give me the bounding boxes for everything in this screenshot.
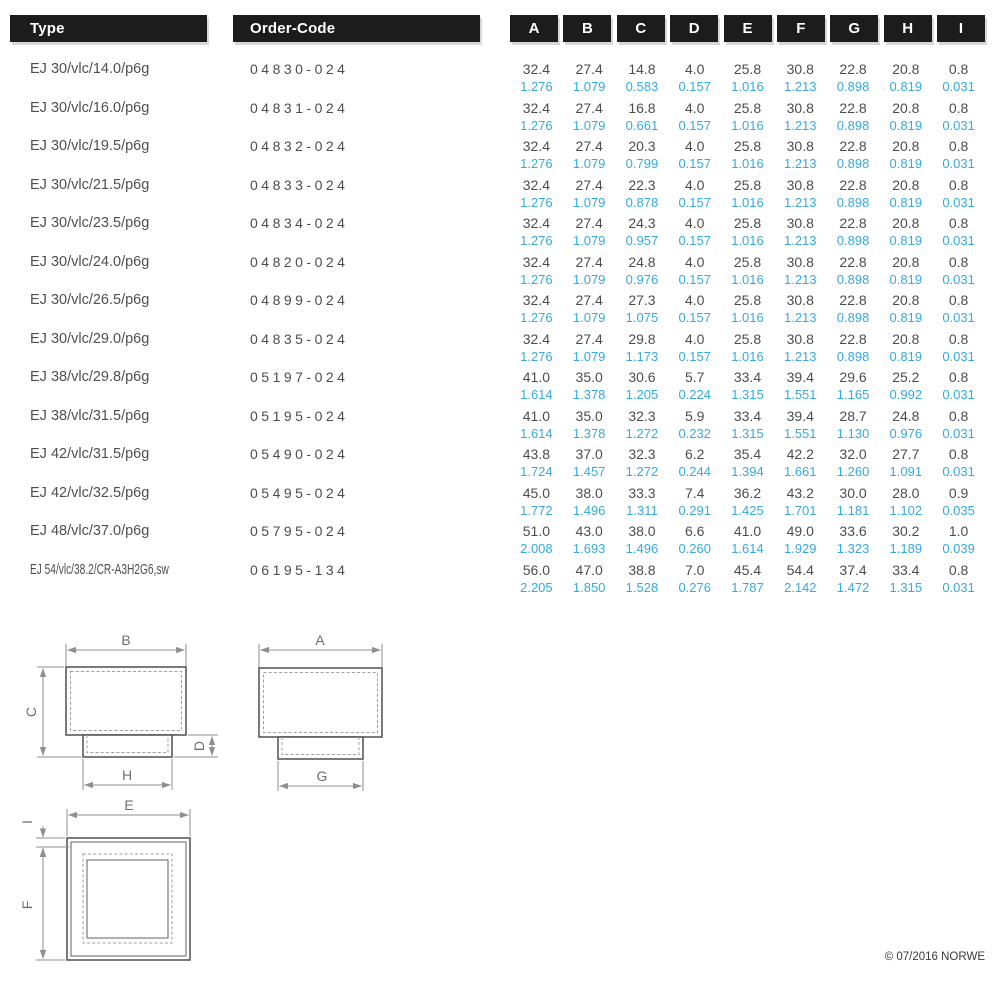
dimension-value-cell: 27.41.079 (563, 60, 616, 96)
value-inch: 1.213 (774, 156, 827, 171)
value-mm: 22.8 (827, 60, 880, 79)
value-inch: 1.315 (721, 426, 774, 441)
value-inch: 0.157 (668, 79, 721, 94)
dimension-label-b: B (121, 632, 130, 648)
value-inch: 0.031 (932, 156, 985, 171)
dimension-values: 45.01.77238.01.49633.31.3117.40.29136.21… (510, 484, 985, 520)
dimension-value-cell: 32.41.276 (510, 214, 563, 250)
dimension-values: 41.01.61435.01.37830.61.2055.70.22433.41… (510, 368, 985, 404)
value-inch: 0.898 (827, 79, 880, 94)
bottom-view-drawing: E I F (22, 795, 217, 975)
dimension-value-cell: 22.30.878 (616, 176, 669, 212)
type-cell: EJ 30/vlc/21.5/p6g (0, 176, 250, 212)
dimension-value-cell: 30.01.181 (827, 484, 880, 520)
dimension-value-cell: 35.41.394 (721, 445, 774, 481)
value-mm: 0.8 (932, 561, 985, 580)
value-inch: 1.213 (774, 118, 827, 133)
value-inch: 1.102 (879, 503, 932, 518)
value-inch: 0.031 (932, 387, 985, 402)
dimension-value-cell: 6.60.260 (668, 522, 721, 558)
value-mm: 30.8 (774, 330, 827, 349)
dimension-value-cell: 30.81.213 (774, 60, 827, 96)
dimension-value-cell: 27.41.079 (563, 176, 616, 212)
value-mm: 22.3 (616, 176, 669, 195)
value-mm: 25.2 (879, 368, 932, 387)
dimension-value-cell: 0.80.031 (932, 291, 985, 327)
value-mm: 6.2 (668, 445, 721, 464)
value-inch: 0.031 (932, 426, 985, 441)
value-mm: 32.4 (510, 99, 563, 118)
dimension-value-cell: 4.00.157 (668, 253, 721, 289)
value-mm: 30.6 (616, 368, 669, 387)
dimension-label-h: H (122, 767, 132, 783)
value-mm: 16.8 (616, 99, 669, 118)
dimension-value-cell: 51.02.008 (510, 522, 563, 558)
value-inch: 0.157 (668, 118, 721, 133)
value-inch: 0.031 (932, 79, 985, 94)
dimension-value-cell: 25.81.016 (721, 99, 774, 135)
value-mm: 4.0 (668, 214, 721, 233)
value-mm: 5.9 (668, 407, 721, 426)
table-row: EJ 42/vlc/31.5/p6g 05490-024 43.81.72437… (0, 442, 1000, 481)
table-row: EJ 30/vlc/21.5/p6g 04833-024 32.41.27627… (0, 173, 1000, 212)
value-mm: 4.0 (668, 253, 721, 272)
dimension-value-cell: 43.21.701 (774, 484, 827, 520)
dimension-value-cell: 56.02.205 (510, 561, 563, 597)
value-inch: 0.976 (879, 426, 932, 441)
value-mm: 38.0 (616, 522, 669, 541)
value-inch: 1.276 (510, 79, 563, 94)
value-mm: 0.8 (932, 176, 985, 195)
value-mm: 42.2 (774, 445, 827, 464)
dimension-value-cell: 32.41.276 (510, 330, 563, 366)
dimension-value-cell: 25.81.016 (721, 253, 774, 289)
dimension-value-cell: 30.81.213 (774, 291, 827, 327)
dimension-value-cell: 25.81.016 (721, 291, 774, 327)
value-mm: 41.0 (721, 522, 774, 541)
value-mm: 22.8 (827, 330, 880, 349)
dimension-value-cell: 25.20.992 (879, 368, 932, 404)
value-inch: 1.016 (721, 118, 774, 133)
type-header-label: Type (30, 20, 65, 37)
value-mm: 22.8 (827, 137, 880, 156)
table-row: EJ 30/vlc/14.0/p6g 04830-024 32.41.27627… (0, 57, 1000, 96)
value-inch: 1.173 (616, 349, 669, 364)
value-inch: 0.898 (827, 156, 880, 171)
type-cell: EJ 42/vlc/31.5/p6g (0, 445, 250, 481)
value-inch: 0.819 (879, 272, 932, 287)
value-inch: 1.457 (563, 464, 616, 479)
value-mm: 28.0 (879, 484, 932, 503)
value-mm: 49.0 (774, 522, 827, 541)
value-inch: 0.898 (827, 233, 880, 248)
dimension-value-cell: 0.80.031 (932, 445, 985, 481)
value-inch: 1.189 (879, 541, 932, 556)
value-mm: 22.8 (827, 176, 880, 195)
dimension-value-cell: 39.41.551 (774, 368, 827, 404)
value-inch: 1.213 (774, 79, 827, 94)
dimension-value-cell: 32.41.276 (510, 291, 563, 327)
value-inch: 0.976 (616, 272, 669, 287)
dimension-value-cell: 22.80.898 (827, 291, 880, 327)
dimension-value-cell: 20.80.819 (879, 253, 932, 289)
value-inch: 1.378 (563, 426, 616, 441)
dimension-value-cell: 43.81.724 (510, 445, 563, 481)
value-mm: 27.7 (879, 445, 932, 464)
value-inch: 0.157 (668, 233, 721, 248)
dimension-value-cell: 27.41.079 (563, 253, 616, 289)
dimension-value-cell: 4.00.157 (668, 330, 721, 366)
table-row: EJ 38/vlc/29.8/p6g 05197-024 41.01.61435… (0, 365, 1000, 404)
dimension-value-cell: 30.81.213 (774, 253, 827, 289)
value-mm: 38.8 (616, 561, 669, 580)
value-mm: 37.4 (827, 561, 880, 580)
value-inch: 1.079 (563, 156, 616, 171)
value-inch: 1.551 (774, 426, 827, 441)
value-inch: 0.898 (827, 349, 880, 364)
dimension-value-cell: 4.00.157 (668, 99, 721, 135)
dimension-value-cell: 32.41.276 (510, 253, 563, 289)
dimension-value-cell: 32.01.260 (827, 445, 880, 481)
value-mm: 32.4 (510, 330, 563, 349)
value-inch: 1.528 (616, 580, 669, 595)
dimension-value-cell: 27.31.075 (616, 291, 669, 327)
value-inch: 1.772 (510, 503, 563, 518)
value-inch: 1.315 (721, 387, 774, 402)
value-inch: 0.157 (668, 195, 721, 210)
dimension-value-cell: 1.00.039 (932, 522, 985, 558)
dimension-values: 51.02.00843.01.69338.01.4966.60.26041.01… (510, 522, 985, 558)
value-inch: 1.079 (563, 310, 616, 325)
table-row: EJ 30/vlc/29.0/p6g 04835-024 32.41.27627… (0, 327, 1000, 366)
value-inch: 0.957 (616, 233, 669, 248)
type-cell: EJ 54/vlc/38.2/CR-A3H2G6,sw (0, 561, 250, 597)
dimension-value-cell: 32.41.276 (510, 99, 563, 135)
dimension-label-i: I (22, 820, 35, 824)
value-mm: 4.0 (668, 330, 721, 349)
dimension-value-cell: 39.41.551 (774, 407, 827, 443)
value-mm: 25.8 (721, 137, 774, 156)
dimension-value-cell: 16.80.661 (616, 99, 669, 135)
value-mm: 45.0 (510, 484, 563, 503)
value-inch: 0.819 (879, 310, 932, 325)
value-inch: 1.079 (563, 349, 616, 364)
dimension-value-cell: 0.80.031 (932, 137, 985, 173)
value-inch: 1.323 (827, 541, 880, 556)
value-inch: 1.276 (510, 118, 563, 133)
value-inch: 1.276 (510, 156, 563, 171)
value-mm: 43.8 (510, 445, 563, 464)
dimension-value-cell: 24.30.957 (616, 214, 669, 250)
value-inch: 1.693 (563, 541, 616, 556)
table-row: EJ 30/vlc/23.5/p6g 04834-024 32.41.27627… (0, 211, 1000, 250)
value-mm: 6.6 (668, 522, 721, 541)
dimension-value-cell: 4.00.157 (668, 214, 721, 250)
value-inch: 0.031 (932, 195, 985, 210)
value-inch: 0.799 (616, 156, 669, 171)
dimension-value-cell: 20.30.799 (616, 137, 669, 173)
value-mm: 0.8 (932, 137, 985, 156)
table-row: EJ 48/vlc/37.0/p6g 05795-024 51.02.00843… (0, 519, 1000, 558)
stem-outline (278, 737, 363, 759)
value-inch: 1.181 (827, 503, 880, 518)
dimension-value-cell: 45.41.787 (721, 561, 774, 597)
value-mm: 0.8 (932, 99, 985, 118)
dimension-value-cell: 0.80.031 (932, 368, 985, 404)
value-inch: 1.425 (721, 503, 774, 518)
value-inch: 0.157 (668, 156, 721, 171)
value-inch: 1.079 (563, 195, 616, 210)
value-mm: 7.0 (668, 561, 721, 580)
value-mm: 28.7 (827, 407, 880, 426)
type-label: EJ 42/vlc/32.5/p6g (30, 484, 149, 503)
column-header-f: F (777, 15, 825, 42)
dimension-value-cell: 30.81.213 (774, 330, 827, 366)
value-inch: 0.819 (879, 349, 932, 364)
value-inch: 1.661 (774, 464, 827, 479)
value-mm: 0.8 (932, 291, 985, 310)
dimension-value-cell: 27.41.079 (563, 137, 616, 173)
value-mm: 27.4 (563, 60, 616, 79)
dimension-value-cell: 30.81.213 (774, 99, 827, 135)
dimension-header-row: ABCDEFGHI (510, 15, 985, 42)
dimension-value-cell: 20.80.819 (879, 176, 932, 212)
dimension-value-cell: 0.80.031 (932, 60, 985, 96)
value-mm: 27.4 (563, 137, 616, 156)
stem-outline (83, 735, 172, 757)
dimension-value-cell: 22.80.898 (827, 137, 880, 173)
dimension-values: 32.41.27627.41.07924.30.9574.00.15725.81… (510, 214, 985, 250)
value-mm: 0.8 (932, 330, 985, 349)
dimension-value-cell: 22.80.898 (827, 253, 880, 289)
dimension-value-cell: 41.01.614 (510, 407, 563, 443)
value-mm: 56.0 (510, 561, 563, 580)
value-mm: 4.0 (668, 291, 721, 310)
value-mm: 25.8 (721, 330, 774, 349)
type-label: EJ 30/vlc/21.5/p6g (30, 176, 149, 195)
dimension-value-cell: 45.01.772 (510, 484, 563, 520)
value-mm: 25.8 (721, 253, 774, 272)
order-code-cell: 05795-024 (250, 522, 510, 558)
dimension-value-cell: 42.21.661 (774, 445, 827, 481)
value-inch: 1.213 (774, 195, 827, 210)
value-inch: 0.035 (932, 503, 985, 518)
value-mm: 22.8 (827, 214, 880, 233)
dimension-value-cell: 25.81.016 (721, 214, 774, 250)
value-mm: 41.0 (510, 368, 563, 387)
value-inch: 0.157 (668, 310, 721, 325)
dimension-value-cell: 20.80.819 (879, 214, 932, 250)
value-mm: 20.8 (879, 291, 932, 310)
dimension-value-cell: 36.21.425 (721, 484, 774, 520)
value-inch: 0.898 (827, 118, 880, 133)
value-mm: 32.4 (510, 60, 563, 79)
value-inch: 0.276 (668, 580, 721, 595)
value-mm: 27.4 (563, 99, 616, 118)
dimension-value-cell: 20.80.819 (879, 99, 932, 135)
dimension-value-cell: 54.42.142 (774, 561, 827, 597)
dimension-value-cell: 24.80.976 (616, 253, 669, 289)
value-inch: 1.394 (721, 464, 774, 479)
value-inch: 0.878 (616, 195, 669, 210)
value-inch: 0.031 (932, 233, 985, 248)
dimension-value-cell: 0.80.031 (932, 176, 985, 212)
type-cell: EJ 38/vlc/31.5/p6g (0, 407, 250, 443)
value-mm: 29.6 (827, 368, 880, 387)
type-label: EJ 38/vlc/31.5/p6g (30, 407, 149, 426)
type-label: EJ 30/vlc/14.0/p6g (30, 60, 149, 79)
dimension-value-cell: 4.00.157 (668, 291, 721, 327)
table-row: EJ 42/vlc/32.5/p6g 05495-024 45.01.77238… (0, 481, 1000, 520)
value-inch: 0.898 (827, 195, 880, 210)
column-header-b: B (563, 15, 611, 42)
dimension-value-cell: 33.41.315 (721, 368, 774, 404)
value-inch: 0.819 (879, 79, 932, 94)
dimension-value-cell: 30.61.205 (616, 368, 669, 404)
value-inch: 0.224 (668, 387, 721, 402)
dimension-value-cell: 29.81.173 (616, 330, 669, 366)
value-mm: 33.4 (721, 407, 774, 426)
dimension-value-cell: 20.80.819 (879, 291, 932, 327)
value-mm: 33.4 (721, 368, 774, 387)
dimension-value-cell: 25.81.016 (721, 330, 774, 366)
value-inch: 1.496 (616, 541, 669, 556)
value-inch: 1.016 (721, 349, 774, 364)
dimension-value-cell: 49.01.929 (774, 522, 827, 558)
value-mm: 4.0 (668, 176, 721, 195)
type-label: EJ 30/vlc/26.5/p6g (30, 291, 149, 310)
value-inch: 0.819 (879, 233, 932, 248)
value-inch: 2.205 (510, 580, 563, 595)
dimension-value-cell: 41.01.614 (721, 522, 774, 558)
dimension-label-a: A (315, 632, 325, 648)
value-mm: 32.4 (510, 176, 563, 195)
value-inch: 1.311 (616, 503, 669, 518)
dimension-value-cell: 22.80.898 (827, 99, 880, 135)
table-row: EJ 30/vlc/24.0/p6g 04820-024 32.41.27627… (0, 250, 1000, 289)
dimension-value-cell: 30.81.213 (774, 176, 827, 212)
dimension-values: 32.41.27627.41.07914.80.5834.00.15725.81… (510, 60, 985, 96)
value-mm: 30.8 (774, 137, 827, 156)
type-label: EJ 30/vlc/24.0/p6g (30, 253, 149, 272)
value-inch: 0.031 (932, 310, 985, 325)
value-inch: 0.291 (668, 503, 721, 518)
dimension-value-cell: 25.81.016 (721, 137, 774, 173)
value-inch: 1.724 (510, 464, 563, 479)
type-cell: EJ 48/vlc/37.0/p6g (0, 522, 250, 558)
value-inch: 0.031 (932, 349, 985, 364)
value-mm: 24.3 (616, 214, 669, 233)
value-mm: 51.0 (510, 522, 563, 541)
value-inch: 1.213 (774, 349, 827, 364)
order-code-cell: 04835-024 (250, 330, 510, 366)
type-cell: EJ 30/vlc/26.5/p6g (0, 291, 250, 327)
dimension-value-cell: 0.80.031 (932, 561, 985, 597)
type-label: EJ 30/vlc/16.0/p6g (30, 99, 149, 118)
value-inch: 1.079 (563, 272, 616, 287)
value-mm: 25.8 (721, 99, 774, 118)
column-header-e: E (724, 15, 772, 42)
value-mm: 24.8 (616, 253, 669, 272)
value-inch: 0.819 (879, 156, 932, 171)
dimension-value-cell: 5.90.232 (668, 407, 721, 443)
dimension-values: 32.41.27627.41.07924.80.9764.00.15725.81… (510, 253, 985, 289)
dimension-value-cell: 41.01.614 (510, 368, 563, 404)
column-header-d: D (670, 15, 718, 42)
value-mm: 25.8 (721, 60, 774, 79)
value-mm: 30.2 (879, 522, 932, 541)
dimension-value-cell: 14.80.583 (616, 60, 669, 96)
dimension-value-cell: 38.01.496 (563, 484, 616, 520)
value-mm: 43.0 (563, 522, 616, 541)
value-inch: 1.701 (774, 503, 827, 518)
dimension-values: 32.41.27627.41.07916.80.6614.00.15725.81… (510, 99, 985, 135)
type-cell: EJ 38/vlc/29.8/p6g (0, 368, 250, 404)
dimension-value-cell: 47.01.850 (563, 561, 616, 597)
column-header-h: H (884, 15, 932, 42)
dimension-value-cell: 0.80.031 (932, 99, 985, 135)
dimension-label-e: E (124, 797, 133, 813)
dimension-label-c: C (25, 707, 39, 717)
table-row: EJ 54/vlc/38.2/CR-A3H2G6,sw 06195-134 56… (0, 558, 1000, 597)
value-inch: 1.213 (774, 233, 827, 248)
dimension-values: 32.41.27627.41.07927.31.0754.00.15725.81… (510, 291, 985, 327)
dimension-value-cell: 0.80.031 (932, 214, 985, 250)
type-cell: EJ 42/vlc/32.5/p6g (0, 484, 250, 520)
value-mm: 20.8 (879, 176, 932, 195)
value-mm: 35.0 (563, 368, 616, 387)
type-label: EJ 48/vlc/37.0/p6g (30, 522, 149, 541)
type-cell: EJ 30/vlc/16.0/p6g (0, 99, 250, 135)
column-header-a: A (510, 15, 558, 42)
column-header-i: I (937, 15, 985, 42)
value-mm: 33.6 (827, 522, 880, 541)
value-mm: 35.0 (563, 407, 616, 426)
dimension-values: 56.02.20547.01.85038.81.5287.00.27645.41… (510, 561, 985, 597)
dimension-value-cell: 6.20.244 (668, 445, 721, 481)
dimension-values: 43.81.72437.01.45732.31.2726.20.24435.41… (510, 445, 985, 481)
dimension-value-cell: 0.80.031 (932, 253, 985, 289)
value-inch: 1.016 (721, 272, 774, 287)
value-mm: 27.4 (563, 214, 616, 233)
value-mm: 20.8 (879, 330, 932, 349)
value-mm: 24.8 (879, 407, 932, 426)
value-mm: 32.4 (510, 214, 563, 233)
value-inch: 0.031 (932, 118, 985, 133)
value-mm: 20.8 (879, 60, 932, 79)
value-mm: 29.8 (616, 330, 669, 349)
dimension-value-cell: 4.00.157 (668, 137, 721, 173)
body-outline (259, 668, 382, 737)
order-code-cell: 04834-024 (250, 214, 510, 250)
dimension-value-cell: 27.41.079 (563, 291, 616, 327)
dimension-value-cell: 27.41.079 (563, 330, 616, 366)
dimension-value-cell: 33.41.315 (879, 561, 932, 597)
dimension-value-cell: 37.01.457 (563, 445, 616, 481)
value-mm: 32.4 (510, 137, 563, 156)
dimension-value-cell: 35.01.378 (563, 368, 616, 404)
type-cell: EJ 30/vlc/19.5/p6g (0, 137, 250, 173)
type-label: EJ 30/vlc/29.0/p6g (30, 330, 149, 349)
value-mm: 27.4 (563, 176, 616, 195)
value-mm: 32.3 (616, 407, 669, 426)
table-row: EJ 30/vlc/19.5/p6g 04832-024 32.41.27627… (0, 134, 1000, 173)
dimension-values: 32.41.27627.41.07922.30.8784.00.15725.81… (510, 176, 985, 212)
dimension-value-cell: 35.01.378 (563, 407, 616, 443)
value-mm: 0.8 (932, 253, 985, 272)
dimension-value-cell: 22.80.898 (827, 214, 880, 250)
value-mm: 32.4 (510, 253, 563, 272)
